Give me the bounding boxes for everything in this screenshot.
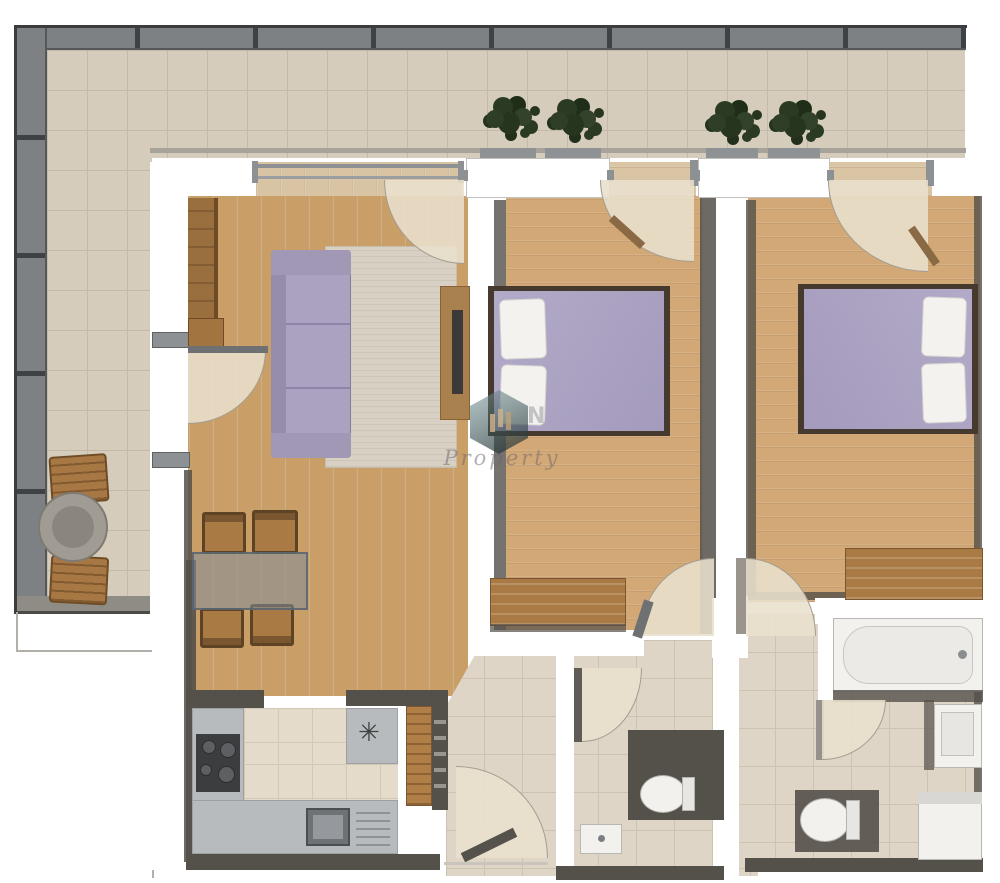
wc-toilet-lid (682, 777, 695, 811)
dining-chair (200, 608, 244, 648)
kitchen-bottom-wall (186, 854, 440, 870)
washing-machine-top (918, 792, 982, 804)
dining-chair (252, 510, 298, 554)
basin-wall-shadow (924, 700, 934, 770)
window-sill-box-1 (466, 158, 610, 198)
bathtub-basin (843, 626, 973, 684)
bathtub-wall-stub (818, 614, 834, 700)
watermark-text: Property (432, 446, 572, 470)
bedroom1-bottom-wall (468, 630, 644, 656)
watermark-logo-buildings (490, 414, 495, 432)
bathroom-bottom-wall (745, 858, 983, 872)
bedroom2-dresser (845, 548, 983, 600)
ceiling-fan-icon: ✳ (358, 720, 386, 748)
sink-drainer (356, 812, 390, 846)
plant (550, 112, 568, 130)
wardrobe (188, 198, 218, 338)
bedroom1-dresser-shadow (490, 624, 626, 632)
kitchen-sink-basin (313, 815, 343, 839)
sofa-backrest (271, 250, 286, 458)
left-wall-lower (152, 465, 188, 870)
plant (486, 110, 504, 128)
bedroom1-dresser (490, 578, 626, 626)
bed1-pillow (499, 298, 547, 360)
wc-washbasin-faucet (598, 835, 605, 842)
bed2-pillow (921, 362, 967, 423)
wc-door-leaf (574, 668, 582, 742)
sofa-cushion-seam (286, 323, 350, 325)
bathtub-faucet (958, 650, 967, 659)
sill-clip (693, 170, 700, 181)
dining-chair (250, 604, 294, 646)
kitchen-top-wall-left (186, 690, 264, 708)
building-outline-segment (16, 650, 154, 652)
tv (452, 310, 463, 394)
cooktop-burner (202, 740, 216, 754)
bathroom-toilet-lid (846, 800, 860, 840)
kitchen-shelf-cabinet (406, 706, 432, 806)
console-table (188, 318, 224, 348)
cooktop-burner (220, 742, 236, 758)
radiator (434, 712, 446, 788)
bathroom-washbasin-bowl (941, 712, 974, 756)
sofa-cushion-seam (286, 387, 350, 389)
wc-bottom-wall (556, 866, 724, 880)
bed2-pillow (921, 296, 967, 357)
plant (708, 114, 726, 132)
wall-bedrooms-shadow-right (746, 200, 756, 596)
dining-chair (202, 512, 246, 554)
living-window-frame (254, 164, 464, 168)
cooktop-burner (218, 766, 235, 783)
balcony-door-frame-bottom (152, 452, 190, 468)
building-outline-segment (16, 612, 18, 652)
entrance-threshold (444, 862, 548, 865)
balcony-door-frame-top (152, 332, 190, 348)
bedroom2-hall-door-leaf (736, 558, 746, 634)
left-wall-upper (152, 196, 188, 335)
balcony-chair-bottom (49, 555, 109, 606)
window-post (252, 161, 258, 183)
sofa-armrest-top (271, 250, 351, 275)
watermark-letter-fragment: N (527, 404, 545, 429)
balcony-railing-top (17, 28, 966, 50)
sofa-armrest-bottom (271, 433, 351, 458)
living-window-frame-2 (254, 176, 464, 179)
plant (772, 114, 790, 132)
kitchen-floor-2 (244, 764, 398, 802)
dining-table-glass (192, 552, 308, 610)
living-balcony-door-leaf (188, 346, 268, 353)
balcony-floor-top (47, 50, 965, 162)
window-sill-box-2 (698, 158, 830, 198)
right-exterior-wall (980, 160, 1000, 872)
balcony-round-table-top (52, 506, 94, 548)
wc-left-wall (556, 656, 574, 876)
cooktop-burner (200, 764, 212, 776)
bathroom-toilet-bowl (800, 798, 850, 842)
floor-plan-scene: ✳ N Property (0, 0, 1000, 883)
wc-toilet-bowl (640, 775, 686, 813)
